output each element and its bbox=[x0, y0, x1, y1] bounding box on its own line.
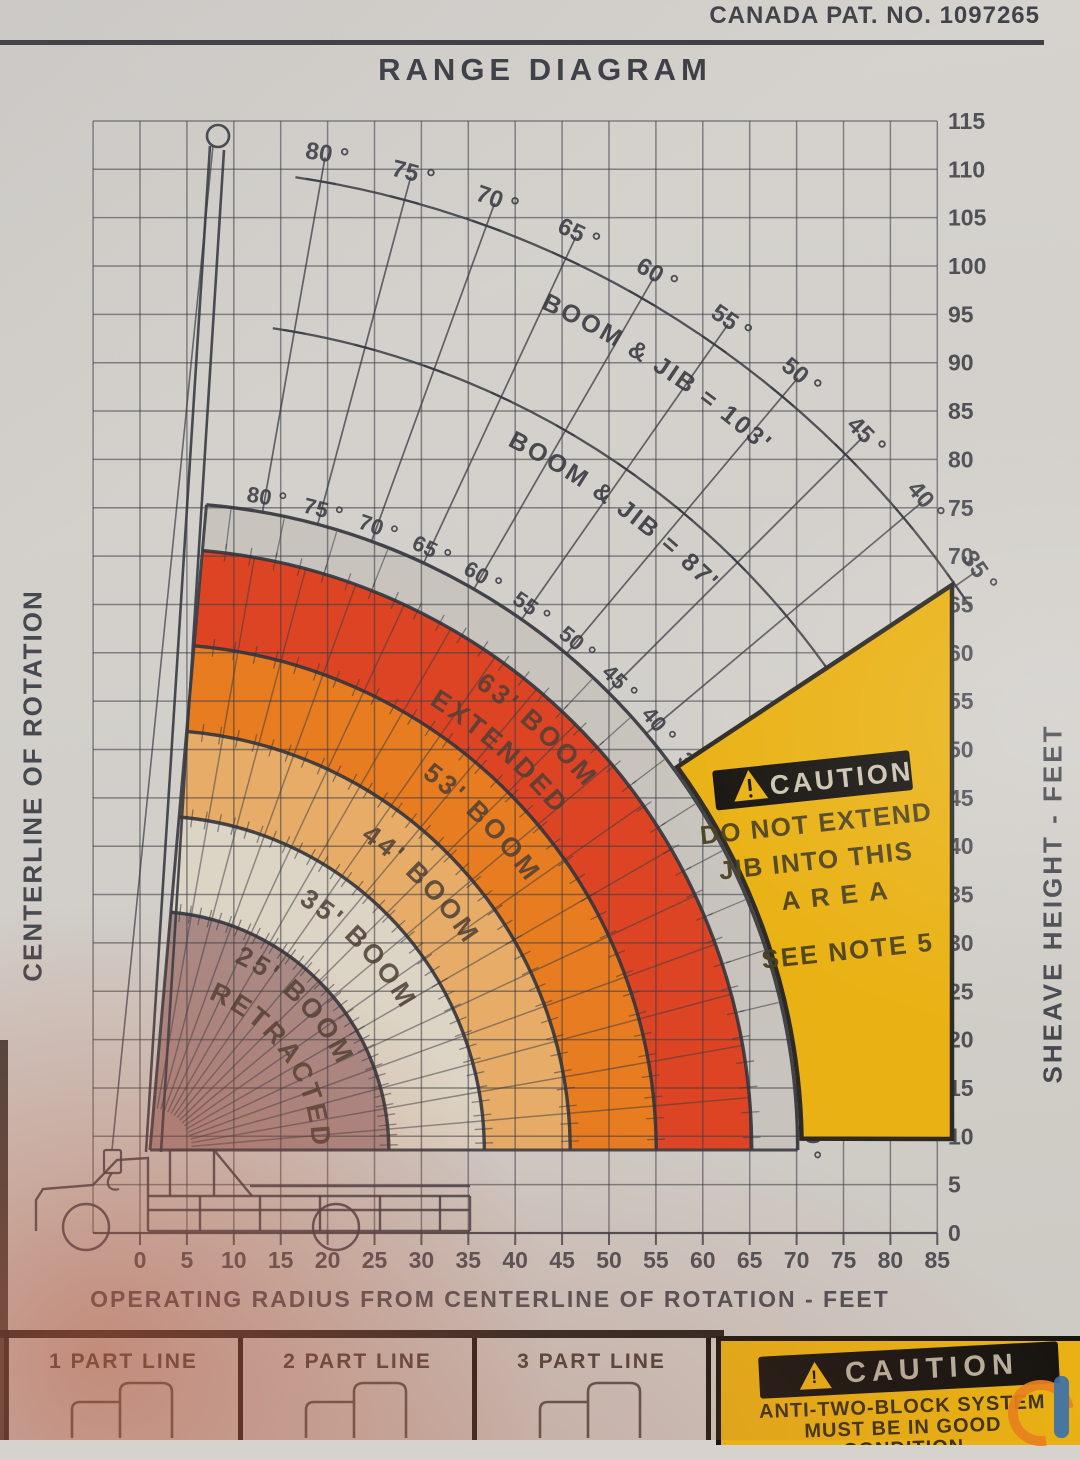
photo-watermark-logo bbox=[1008, 1376, 1080, 1448]
part-line-cell: 2 PART LINE bbox=[243, 1338, 477, 1440]
hook-block-icon bbox=[44, 1380, 204, 1438]
sheave-tick-label: 95 bbox=[948, 301, 974, 327]
radius-tick-label: 25 bbox=[362, 1247, 388, 1273]
part-line-label: 2 PART LINE bbox=[243, 1350, 472, 1374]
part-line-table: 1 PART LINE 2 PART LINE 3 PART LINE bbox=[9, 1338, 711, 1440]
sheave-tick-label: 75 bbox=[948, 495, 974, 521]
operating-radius-axis-label: OPERATING RADIUS FROM CENTERLINE OF ROTA… bbox=[60, 1286, 920, 1313]
sheave-tick-label: 85 bbox=[948, 398, 974, 424]
sheave-tick-label: 115 bbox=[948, 108, 985, 134]
sheave-tick-label: 90 bbox=[948, 350, 974, 376]
hook-block-icon bbox=[278, 1380, 438, 1438]
hook-icon bbox=[108, 1173, 119, 1190]
sheave-tick-label: 105 bbox=[948, 205, 987, 231]
sheave-tick-label: 70 bbox=[948, 543, 974, 569]
sheave-tick-label: 80 bbox=[948, 446, 974, 472]
radius-tick-label: 60 bbox=[690, 1247, 716, 1273]
radius-tick-label: 45 bbox=[549, 1247, 575, 1273]
jib-angle-label: 45 ° bbox=[842, 411, 892, 461]
jib-angle-label: 40 ° bbox=[902, 476, 951, 527]
radius-tick-label: 65 bbox=[737, 1247, 763, 1273]
radius-tick-label: 5 bbox=[181, 1247, 194, 1273]
warning-triangle-icon bbox=[798, 1361, 831, 1390]
bottom-strip: 1 PART LINE 2 PART LINE 3 PART LINE CAUT… bbox=[0, 1330, 1080, 1440]
jib-angle-label: 65 ° bbox=[554, 213, 605, 256]
radius-tick-label: 75 bbox=[831, 1247, 857, 1273]
range-diagram: 80 °75 °70 °65 °60 °55 °50 °45 °40 °35 °… bbox=[0, 0, 1080, 1330]
radius-tick-label: 55 bbox=[643, 1247, 669, 1273]
sheave-tick-label: 5 bbox=[948, 1172, 961, 1198]
radius-tick-label: 35 bbox=[456, 1247, 482, 1273]
crane-load-chart-placard: { "header": { "patent": "CANADA PAT. NO.… bbox=[0, 0, 1080, 1440]
radius-tick-label: 15 bbox=[268, 1247, 294, 1273]
caution-banner-label: CAUTION bbox=[844, 1348, 1020, 1390]
boom-jib-arc-label: BOOM & JIB = 87' bbox=[504, 426, 724, 597]
sheave-tick-label: 0 bbox=[948, 1220, 961, 1246]
sheave-tick-label: 100 bbox=[948, 253, 986, 279]
part-line-cell: 3 PART LINE bbox=[477, 1338, 711, 1440]
truck-illustration bbox=[36, 1150, 470, 1250]
radius-tick-label: 50 bbox=[596, 1247, 622, 1273]
jib-angle-label: 50 ° bbox=[776, 352, 826, 400]
part-line-label: 3 PART LINE bbox=[477, 1350, 706, 1374]
jib-angle-label: 75 ° bbox=[389, 155, 438, 192]
radius-tick-label: 85 bbox=[925, 1247, 951, 1273]
sheave-icon bbox=[207, 125, 229, 147]
hook-block-icon bbox=[512, 1380, 672, 1438]
sheave-tick-label: 110 bbox=[948, 156, 985, 182]
jib-angle-label: 60 ° bbox=[632, 252, 683, 297]
radius-tick-label: 0 bbox=[134, 1247, 147, 1273]
radius-tick-label: 30 bbox=[409, 1247, 435, 1273]
radius-tick-label: 40 bbox=[502, 1247, 528, 1273]
radius-tick-label: 80 bbox=[878, 1247, 904, 1273]
wheel-icon bbox=[63, 1204, 109, 1250]
part-line-label: 1 PART LINE bbox=[9, 1350, 238, 1374]
part-line-cell: 1 PART LINE bbox=[9, 1338, 243, 1440]
placard-edge-shadow bbox=[0, 1040, 8, 1440]
jib-angle-label: 80 ° bbox=[304, 137, 351, 171]
watermark-bar bbox=[1054, 1376, 1069, 1438]
radius-tick-label: 70 bbox=[784, 1247, 810, 1273]
strip-divider bbox=[0, 1330, 724, 1338]
radius-tick-label: 10 bbox=[221, 1247, 247, 1273]
